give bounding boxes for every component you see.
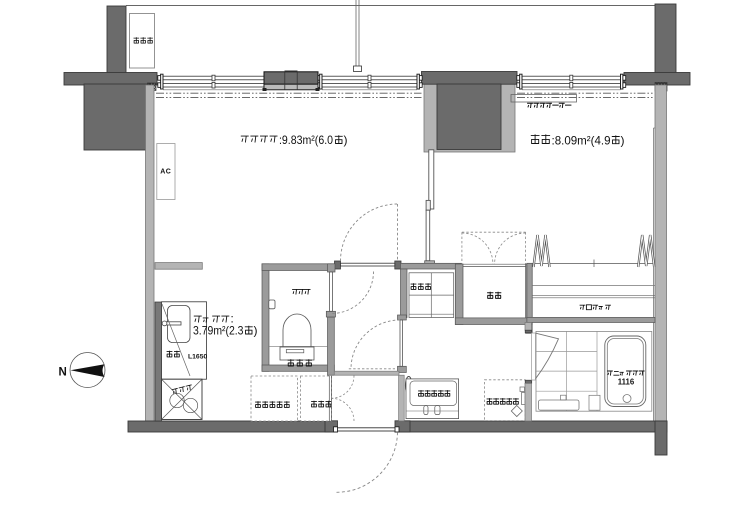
svg-text::9.83m²(6.0: :9.83m²(6.0 (279, 133, 333, 147)
svg-text:AC: AC (160, 169, 171, 176)
svg-text::8.09m²(4.9: :8.09m²(4.9 (552, 134, 611, 148)
svg-text:1116: 1116 (618, 378, 635, 387)
svg-text:): ) (621, 134, 625, 148)
svg-text:N: N (59, 367, 67, 379)
svg-text:3.79m²(2.3: 3.79m²(2.3 (193, 324, 244, 338)
svg-text:): ) (254, 324, 258, 338)
svg-text:): ) (344, 133, 348, 147)
svg-text:L1650: L1650 (188, 354, 207, 361)
